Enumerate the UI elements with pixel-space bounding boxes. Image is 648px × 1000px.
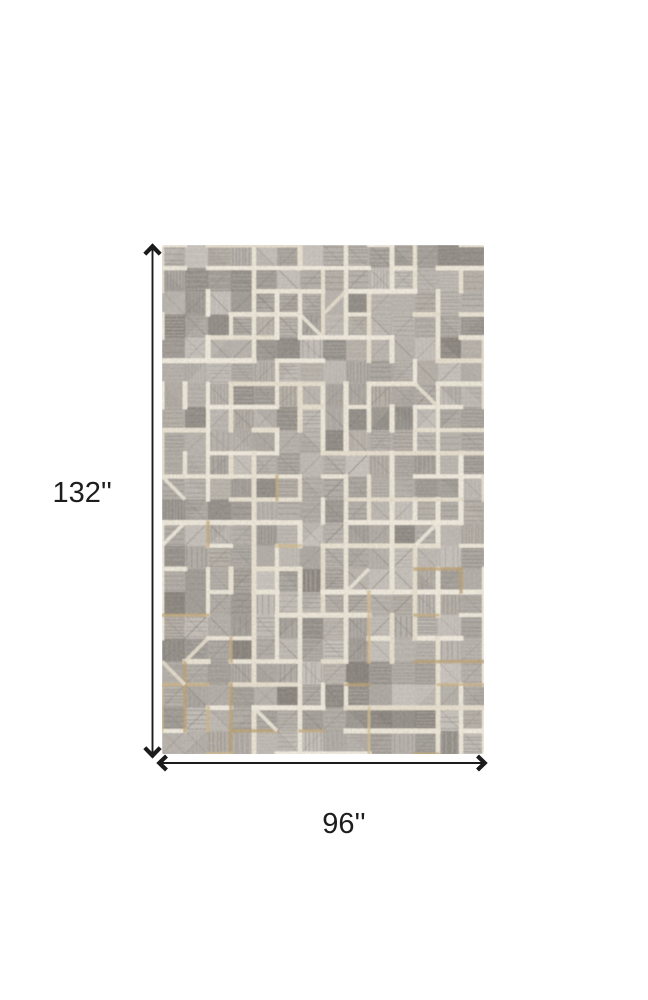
svg-text:132'': 132'' xyxy=(53,477,112,509)
svg-text:96'': 96'' xyxy=(322,808,365,840)
